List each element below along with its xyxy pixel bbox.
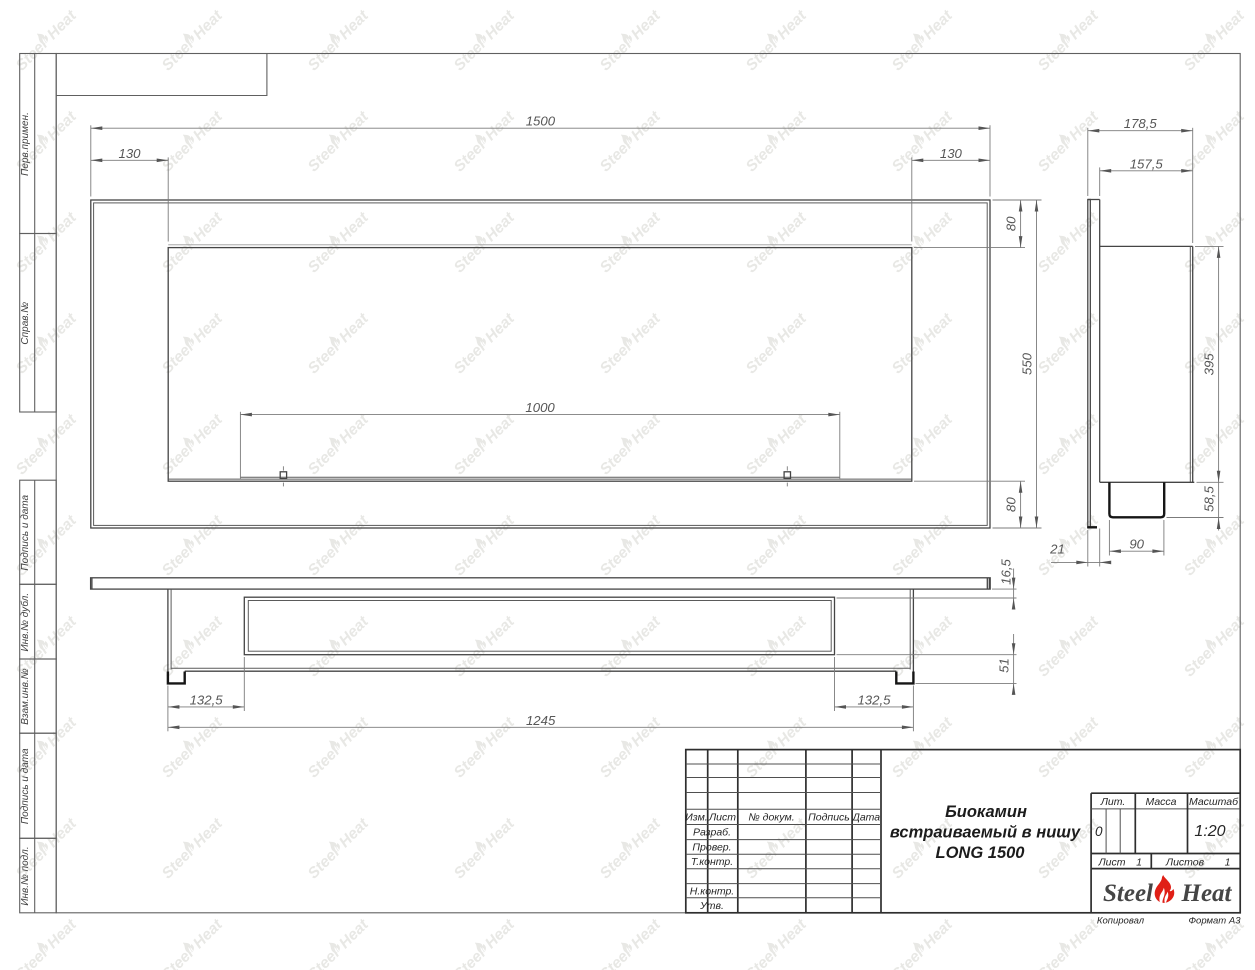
svg-text:550: 550	[1020, 352, 1035, 375]
svg-text:Перв.примен.: Перв.примен.	[20, 112, 31, 176]
svg-text:Листов: Листов	[1165, 856, 1205, 868]
svg-text:1245: 1245	[526, 713, 556, 728]
svg-text:0: 0	[1095, 824, 1103, 839]
svg-text:Лист: Лист	[1097, 856, 1125, 868]
svg-text:21: 21	[1049, 542, 1065, 557]
svg-text:Н.контр.: Н.контр.	[690, 886, 734, 898]
svg-text:80: 80	[1004, 497, 1019, 512]
svg-text:встраиваемый в нишу: встраиваемый в нишу	[890, 824, 1081, 842]
svg-text:1500: 1500	[526, 114, 556, 129]
svg-text:Масса: Масса	[1145, 796, 1176, 808]
svg-text:Провер.: Провер.	[692, 841, 731, 853]
svg-text:Инв.№ дубл.: Инв.№ дубл.	[19, 593, 31, 652]
svg-text:Утв.: Утв.	[699, 900, 724, 912]
svg-text:Формат А3: Формат А3	[1189, 916, 1242, 927]
svg-text:130: 130	[118, 146, 141, 161]
svg-text:Инв.№ подл.: Инв.№ подл.	[20, 846, 31, 905]
svg-text:1:20: 1:20	[1194, 823, 1225, 840]
svg-text:Изм.: Изм.	[685, 811, 707, 823]
svg-text:Масштаб: Масштаб	[1189, 796, 1239, 808]
svg-text:LONG 1500: LONG 1500	[936, 844, 1026, 862]
svg-text:58,5: 58,5	[1202, 486, 1217, 512]
svg-text:Лит.: Лит.	[1100, 796, 1126, 808]
svg-text:132,5: 132,5	[190, 692, 224, 707]
svg-text:Steel: Steel	[1103, 880, 1153, 907]
svg-text:80: 80	[1004, 216, 1019, 231]
svg-text:1: 1	[1225, 856, 1231, 868]
svg-text:Подпись: Подпись	[808, 811, 850, 823]
svg-text:132,5: 132,5	[857, 692, 891, 707]
svg-text:16,5: 16,5	[999, 559, 1014, 585]
svg-text:Т.контр.: Т.контр.	[691, 856, 733, 868]
svg-text:Лист: Лист	[708, 811, 736, 823]
svg-text:Копировал: Копировал	[1097, 916, 1145, 927]
svg-text:Heat: Heat	[1181, 880, 1233, 907]
svg-text:51: 51	[997, 658, 1012, 673]
svg-text:№ докум.: № докум.	[748, 811, 794, 823]
svg-text:178,5: 178,5	[1124, 116, 1158, 131]
svg-text:1: 1	[1136, 856, 1142, 868]
svg-text:Дата: Дата	[851, 811, 880, 823]
svg-text:Справ.№: Справ.№	[20, 302, 31, 345]
svg-text:395: 395	[1202, 353, 1217, 376]
svg-text:90: 90	[1129, 537, 1144, 552]
svg-text:Разраб.: Разраб.	[693, 827, 731, 839]
svg-text:Биокамин: Биокамин	[945, 803, 1027, 821]
svg-text:Взам.инв.№: Взам.инв.№	[20, 668, 31, 724]
svg-text:130: 130	[940, 146, 963, 161]
svg-text:Подпись и дата: Подпись и дата	[20, 494, 31, 570]
svg-text:1000: 1000	[525, 400, 555, 415]
svg-text:157,5: 157,5	[1130, 156, 1164, 171]
svg-text:Подпись и дата: Подпись и дата	[20, 748, 31, 824]
